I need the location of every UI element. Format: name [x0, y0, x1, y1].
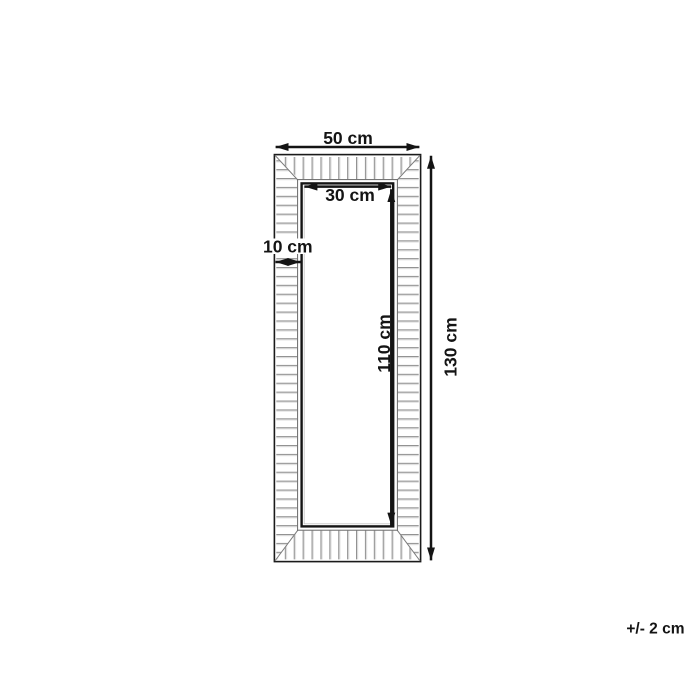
mirror-frame — [274, 155, 420, 562]
frame-hatch-right — [398, 157, 419, 559]
outer-width-label: 50 cm — [323, 128, 373, 148]
frame-hatch-top — [276, 157, 418, 179]
diagram-page: 50 cm 30 cm 10 cm 110 cm 130 cm +/- 2 cm — [0, 0, 700, 700]
inner-width-label: 30 cm — [325, 185, 375, 205]
outer-height-label: 130 cm — [441, 317, 461, 376]
frame-depth-label: 10 cm — [263, 236, 313, 256]
mirror-dimension-diagram: 50 cm 30 cm 10 cm 110 cm 130 cm +/- 2 cm — [0, 0, 700, 700]
frame-hatch-left — [276, 157, 297, 559]
frame-hatch-bottom — [276, 531, 418, 560]
inner-height-label: 110 cm — [374, 314, 394, 372]
tolerance-label: +/- 2 cm — [626, 621, 684, 638]
